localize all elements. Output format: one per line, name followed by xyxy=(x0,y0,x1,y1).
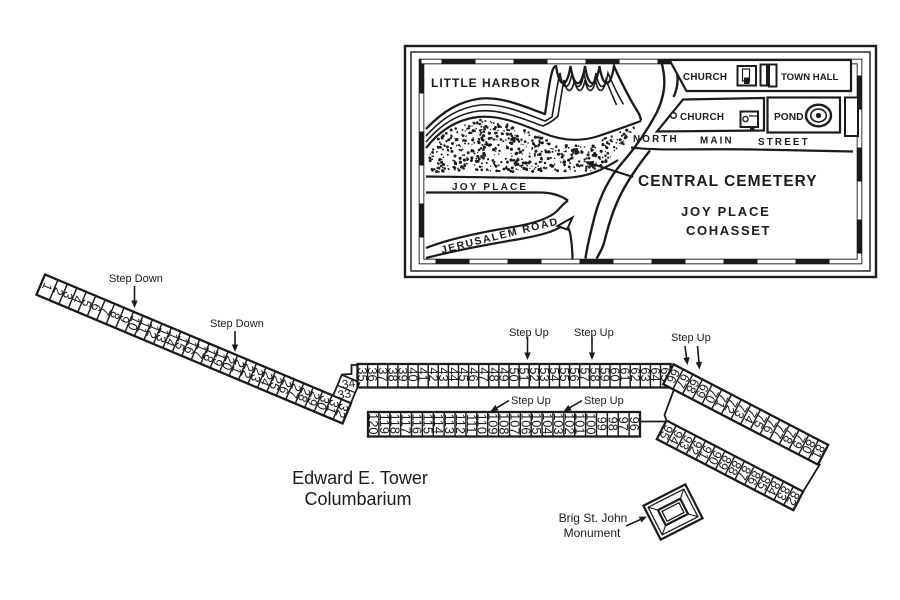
svg-text:COHASSET: COHASSET xyxy=(686,223,771,238)
svg-text:Step Up: Step Up xyxy=(671,332,711,344)
svg-text:33: 33 xyxy=(337,386,352,402)
svg-text:POND: POND xyxy=(774,112,803,123)
svg-text:STREET: STREET xyxy=(758,137,810,148)
svg-text:Step Up: Step Up xyxy=(584,395,624,407)
svg-text:CENTRAL CEMETERY: CENTRAL CEMETERY xyxy=(638,173,818,190)
svg-text:Step Up: Step Up xyxy=(511,395,551,407)
svg-text:Brig St. John: Brig St. John xyxy=(559,511,628,525)
svg-text:CHURCH: CHURCH xyxy=(680,112,724,123)
svg-text:MAIN: MAIN xyxy=(700,136,734,147)
svg-text:Step Down: Step Down xyxy=(210,318,264,330)
svg-text:Monument: Monument xyxy=(564,526,621,540)
svg-text:JOY PLACE: JOY PLACE xyxy=(452,182,528,193)
svg-text:Columbarium: Columbarium xyxy=(304,489,411,509)
svg-text:TOWN HALL: TOWN HALL xyxy=(781,72,839,83)
svg-text:NORTH: NORTH xyxy=(633,134,679,145)
svg-text:CHURCH: CHURCH xyxy=(683,72,727,83)
svg-text:JOY PLACE: JOY PLACE xyxy=(681,204,771,219)
svg-text:96: 96 xyxy=(627,417,642,431)
svg-text:LITTLE HARBOR: LITTLE HARBOR xyxy=(431,76,541,90)
svg-text:Step Up: Step Up xyxy=(574,327,614,339)
svg-text:Step Up: Step Up xyxy=(509,327,549,339)
svg-text:Step Down: Step Down xyxy=(109,273,163,285)
svg-text:Edward E. Tower: Edward E. Tower xyxy=(292,468,428,488)
